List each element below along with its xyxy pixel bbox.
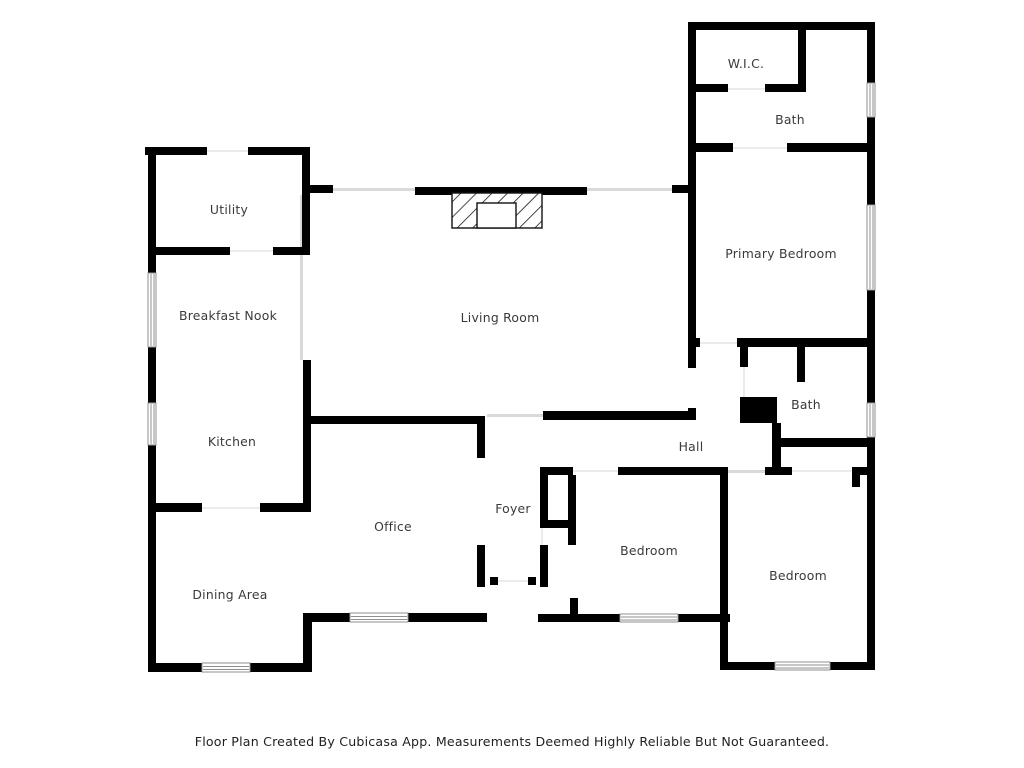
room-label-dining-area: Dining Area — [192, 587, 267, 602]
window-icon — [867, 403, 875, 437]
opening-line — [587, 188, 672, 191]
room-label-breakfast-nook: Breakfast Nook — [179, 308, 278, 323]
opening-line — [487, 414, 543, 417]
room-label-bath-upper: Bath — [775, 112, 805, 127]
room-label-foyer: Foyer — [495, 501, 531, 516]
room-label-bedroom-right: Bedroom — [769, 568, 827, 583]
footer-disclaimer: Floor Plan Created By Cubicasa App. Meas… — [195, 734, 830, 749]
window-icon — [775, 662, 830, 670]
room-label-wic: W.I.C. — [728, 56, 764, 71]
opening-line — [333, 188, 415, 191]
room-label-bedroom-left: Bedroom — [620, 543, 678, 558]
floor-plan-drawing: W.I.C. Bath Primary Bedroom Utility Brea… — [0, 0, 1024, 768]
window-icon — [867, 83, 875, 117]
bath-fixture-icon — [740, 397, 777, 423]
room-label-hall: Hall — [679, 439, 704, 454]
window-icon — [148, 273, 156, 347]
window-icon — [148, 403, 156, 445]
opening-line — [727, 470, 765, 473]
window-icon — [620, 614, 678, 622]
room-label-primary-bedroom: Primary Bedroom — [725, 246, 837, 261]
room-label-utility: Utility — [210, 202, 248, 217]
room-label-bath-lower: Bath — [791, 397, 821, 412]
room-label-office: Office — [374, 519, 412, 534]
window-icon — [867, 205, 875, 290]
floor-plan-canvas: W.I.C. Bath Primary Bedroom Utility Brea… — [0, 0, 1024, 768]
room-label-living-room: Living Room — [461, 310, 540, 325]
room-label-kitchen: Kitchen — [208, 434, 256, 449]
fireplace-icon — [452, 193, 542, 228]
window-icon — [350, 613, 408, 622]
window-icon — [202, 663, 250, 672]
